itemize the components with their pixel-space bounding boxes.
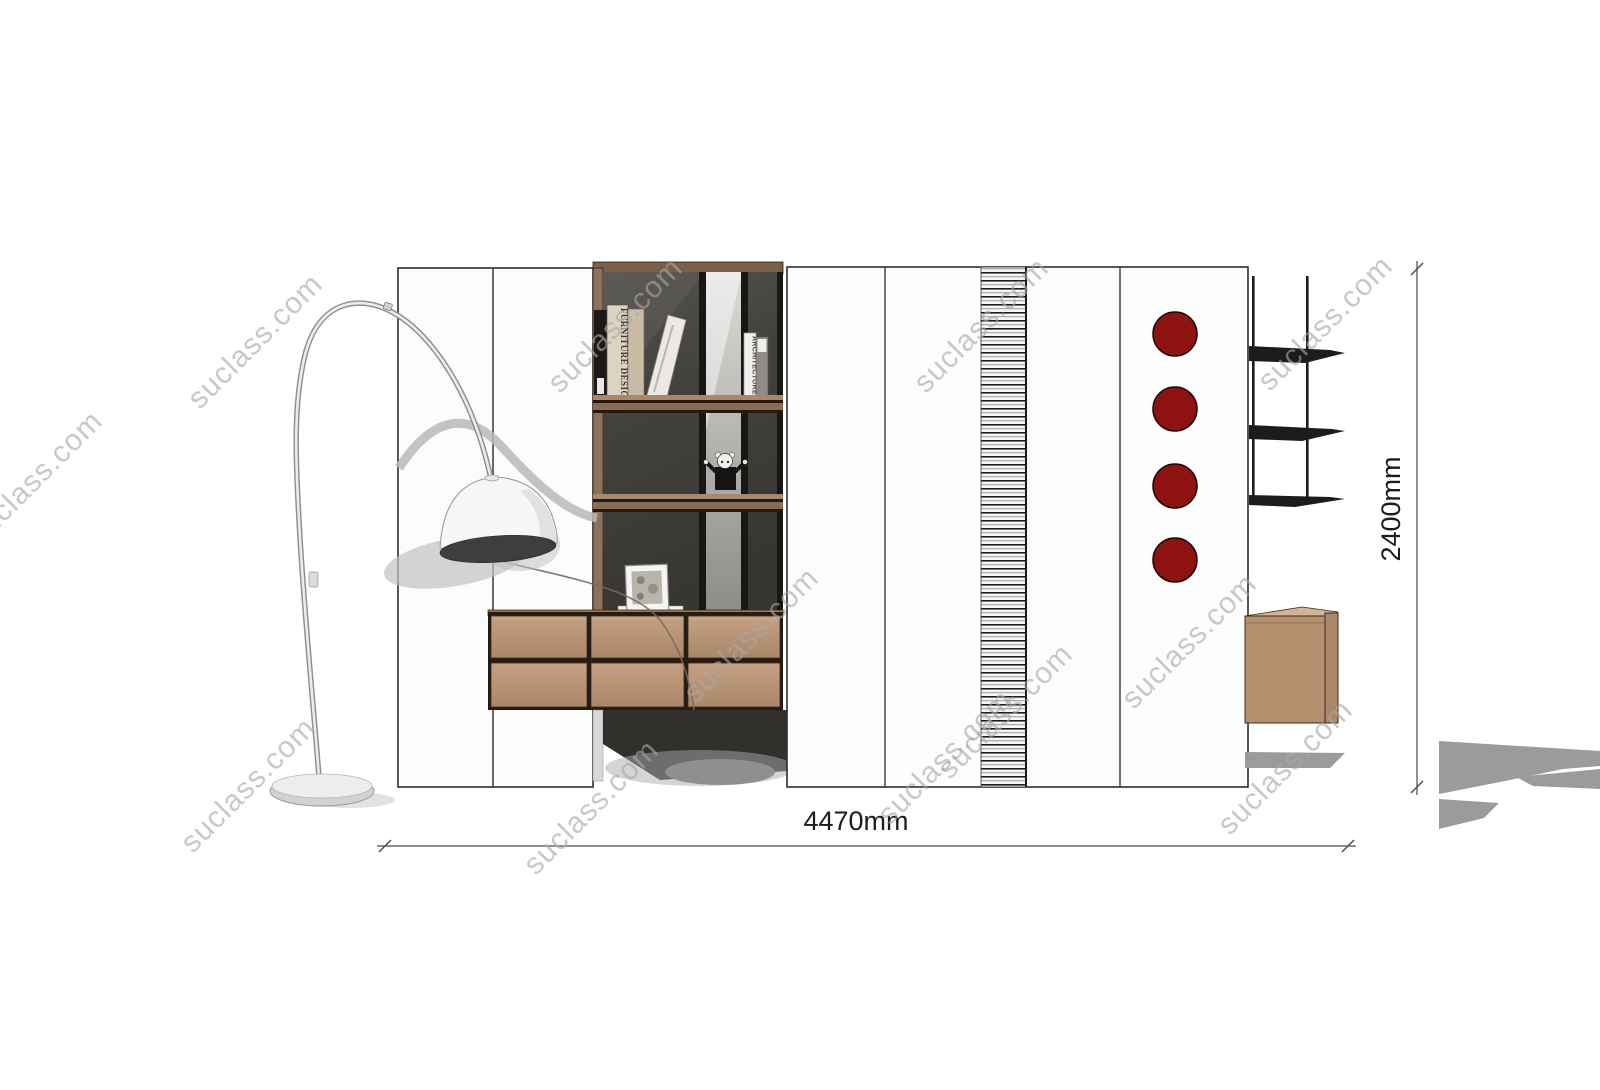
shelf-fin-end: [777, 272, 783, 612]
figurine-head: [718, 454, 733, 469]
red-dot: [1153, 538, 1197, 582]
figurine-body: [715, 467, 736, 490]
shelf-post: [1306, 276, 1309, 503]
shelf-band-2: [593, 494, 783, 512]
drawer-front: [591, 663, 684, 707]
book-grey-label: [758, 339, 767, 352]
shelf-fin-right: [741, 272, 748, 612]
red-dot: [1153, 312, 1197, 356]
shelf-fin-left: [699, 272, 706, 612]
red-dot: [1153, 464, 1197, 508]
figurine-hand-right: [743, 460, 748, 465]
furniture-elevation-svg: FURNITURE DESIGN ARCHITECTURE: [0, 0, 1600, 1090]
figurine-hand-left: [704, 460, 709, 465]
wood-box-front: [1245, 616, 1325, 723]
photo-image: [631, 570, 662, 604]
drawer-front: [491, 616, 587, 658]
floor-shadow: [665, 759, 775, 785]
shelf-band-1: [593, 395, 783, 413]
elevation-drawing-canvas: FURNITURE DESIGN ARCHITECTURE: [0, 0, 1600, 1090]
book-black-label: [597, 378, 604, 394]
lamp-base-top: [272, 774, 372, 798]
height-dimension-label: 2400mm: [1376, 456, 1406, 561]
drawer-front: [491, 663, 587, 707]
red-dot: [1153, 387, 1197, 431]
shelf-post: [1252, 276, 1255, 503]
books-group-right: ARCHITECTURE: [744, 333, 768, 400]
lamp-pole-joint: [309, 572, 318, 587]
drawer-front: [591, 616, 684, 658]
lamp-shade-cap: [485, 475, 499, 481]
cabinet-side-sliver: [593, 710, 603, 781]
